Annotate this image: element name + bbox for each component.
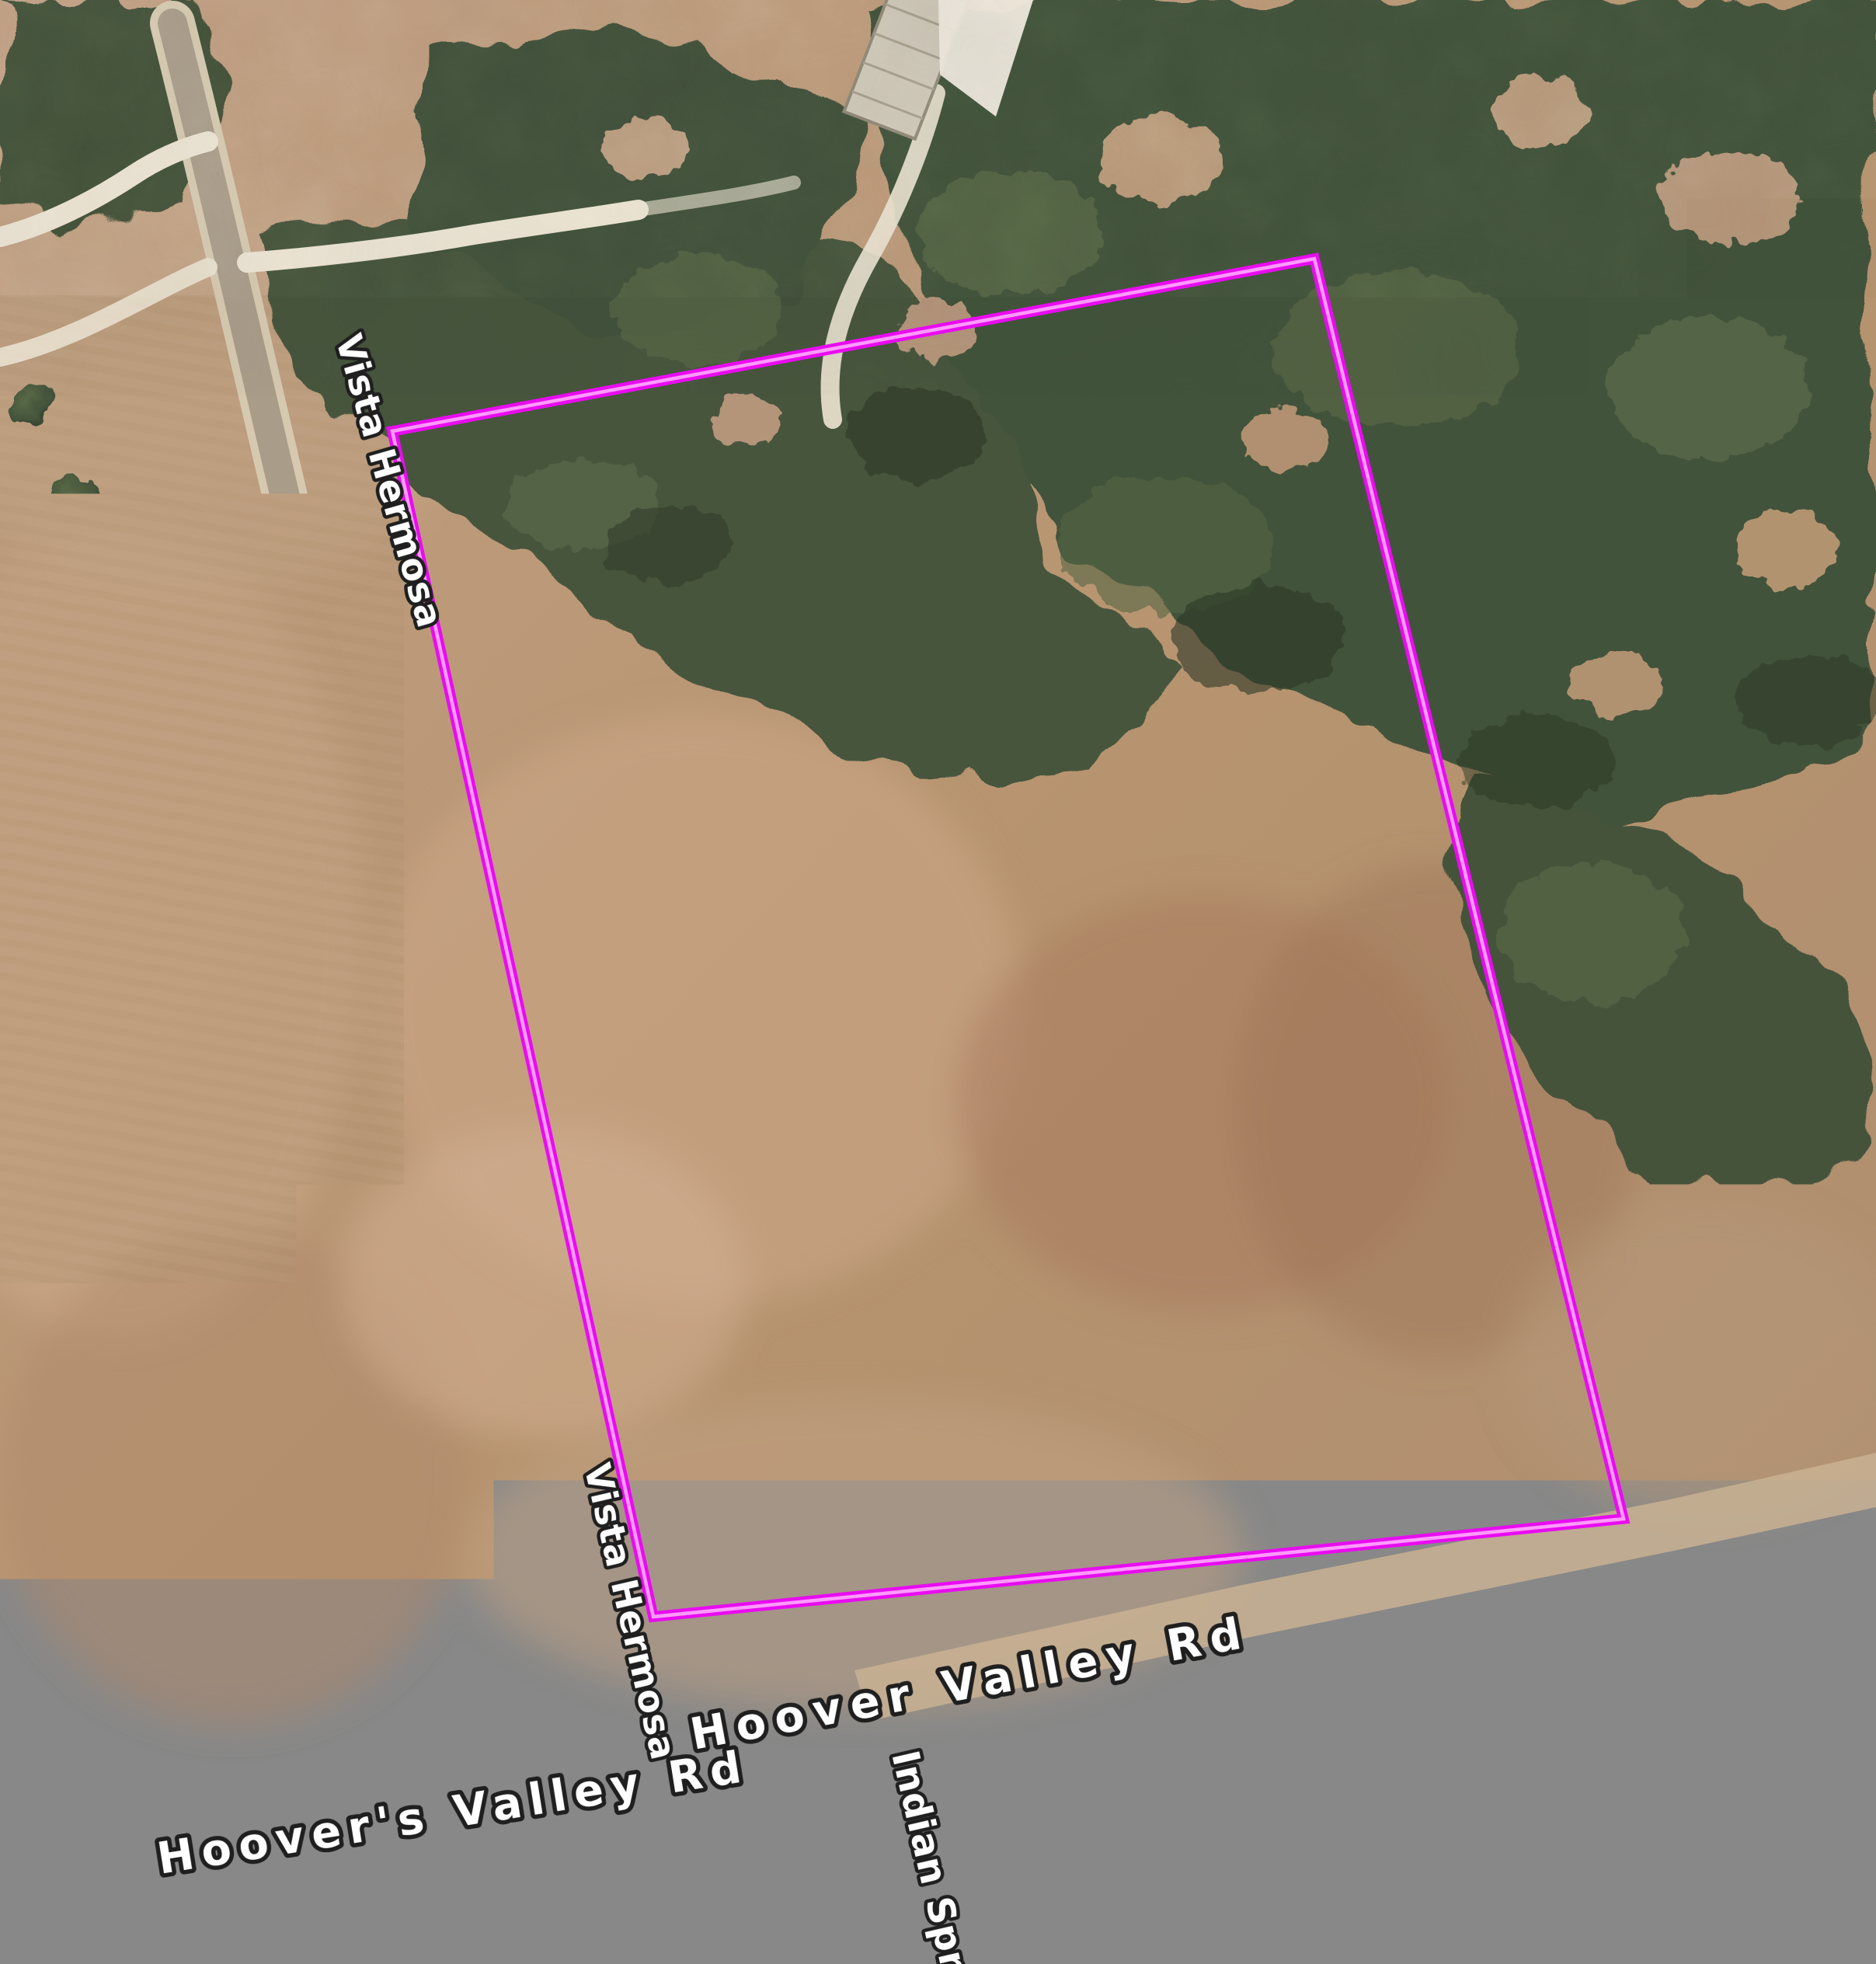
satellite-imagery[interactable]: Vista Hermosa Vista Hermosa Hoover's Val… (0, 0, 1876, 1964)
map-viewport[interactable]: Vista Hermosa Vista Hermosa Hoover's Val… (0, 0, 1876, 1964)
